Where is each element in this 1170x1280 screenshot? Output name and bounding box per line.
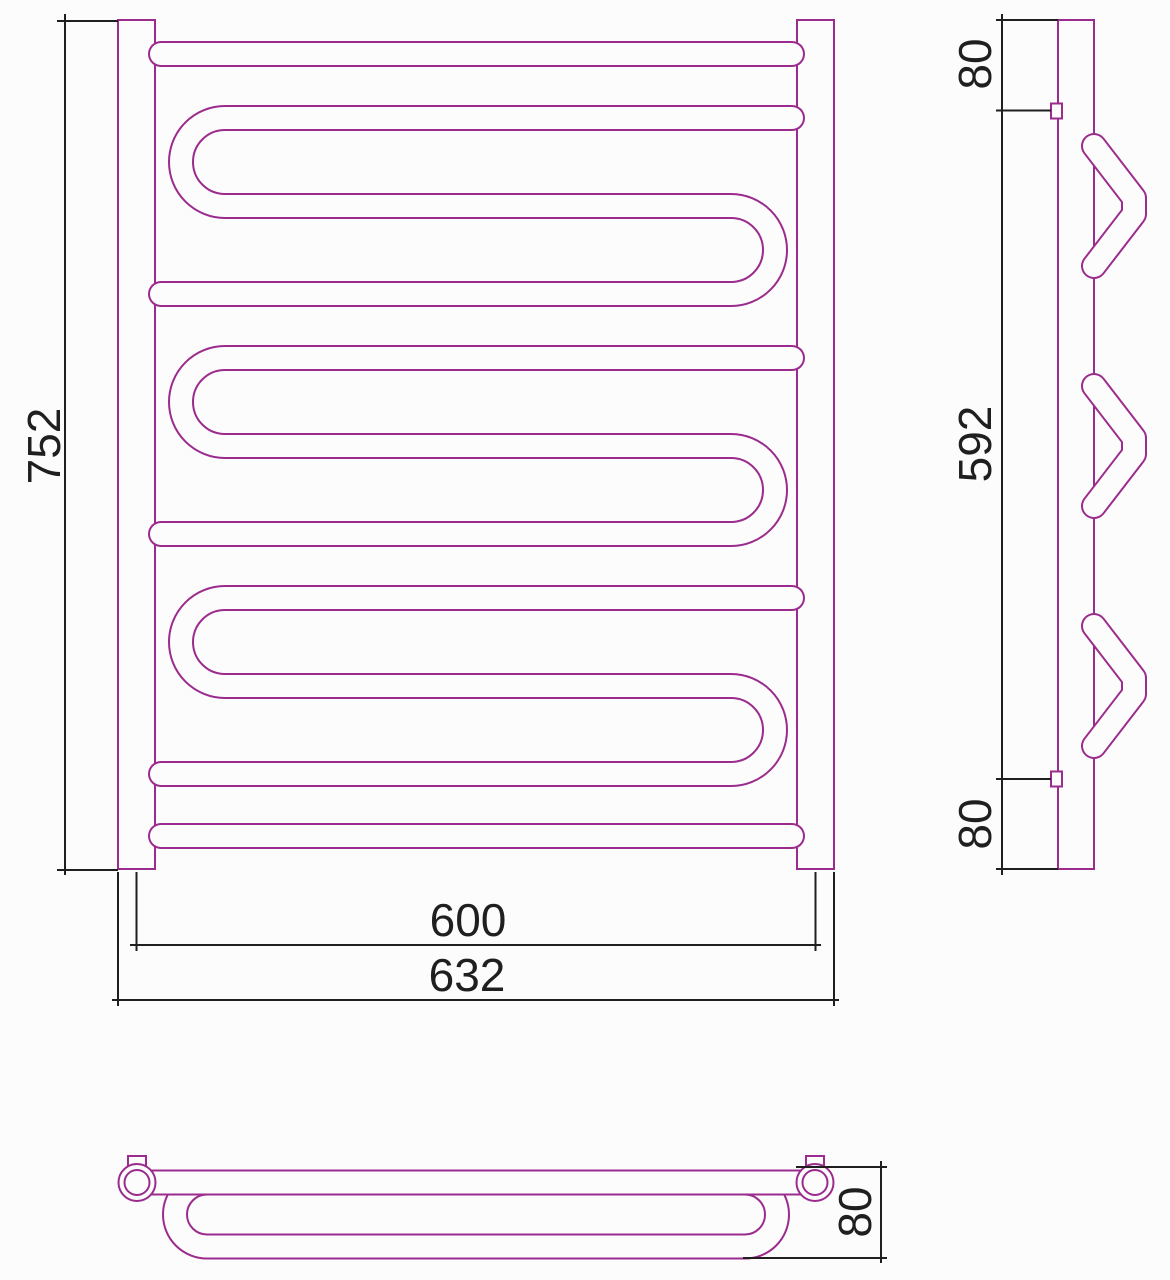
dim-label-592: 592 xyxy=(949,406,1001,483)
side-connection-fitting-bottom xyxy=(1051,772,1062,787)
dim-label-side-bottom-80: 80 xyxy=(949,798,1001,849)
bottom-view xyxy=(119,1156,834,1247)
side-serpentine-3 xyxy=(1094,626,1134,746)
serpentine-coil-3 xyxy=(161,598,792,774)
serpentine-coil-1 xyxy=(161,118,792,294)
side-serpentine-1 xyxy=(1094,146,1134,266)
side-serpentine-2 xyxy=(1094,386,1134,506)
dimension-height-752: 752 xyxy=(18,14,118,875)
side-connection-fitting-top xyxy=(1051,104,1062,119)
dim-label-632: 632 xyxy=(429,949,506,1001)
pipe-connection-left-bore xyxy=(125,1170,150,1195)
dimension-side-offsets: 80 592 80 xyxy=(949,14,1058,875)
dim-label-bottom-80: 80 xyxy=(829,1186,881,1237)
technical-drawing-page: 752 600 632 80 592 80 80 xyxy=(0,0,1170,1280)
side-view xyxy=(1051,20,1134,869)
dim-label-600: 600 xyxy=(430,894,507,946)
dimension-connection-span-600: 600 xyxy=(130,872,821,951)
serpentine-coil-2 xyxy=(161,358,792,534)
towel-rail-technical-drawing: 752 600 632 80 592 80 80 xyxy=(0,0,1170,1280)
front-right-post xyxy=(797,20,834,869)
front-left-post xyxy=(118,20,155,869)
pipe-connection-right-bore xyxy=(803,1170,828,1195)
dim-label-752: 752 xyxy=(18,408,70,485)
front-view xyxy=(118,20,834,869)
dim-label-side-top-80: 80 xyxy=(949,38,1001,89)
